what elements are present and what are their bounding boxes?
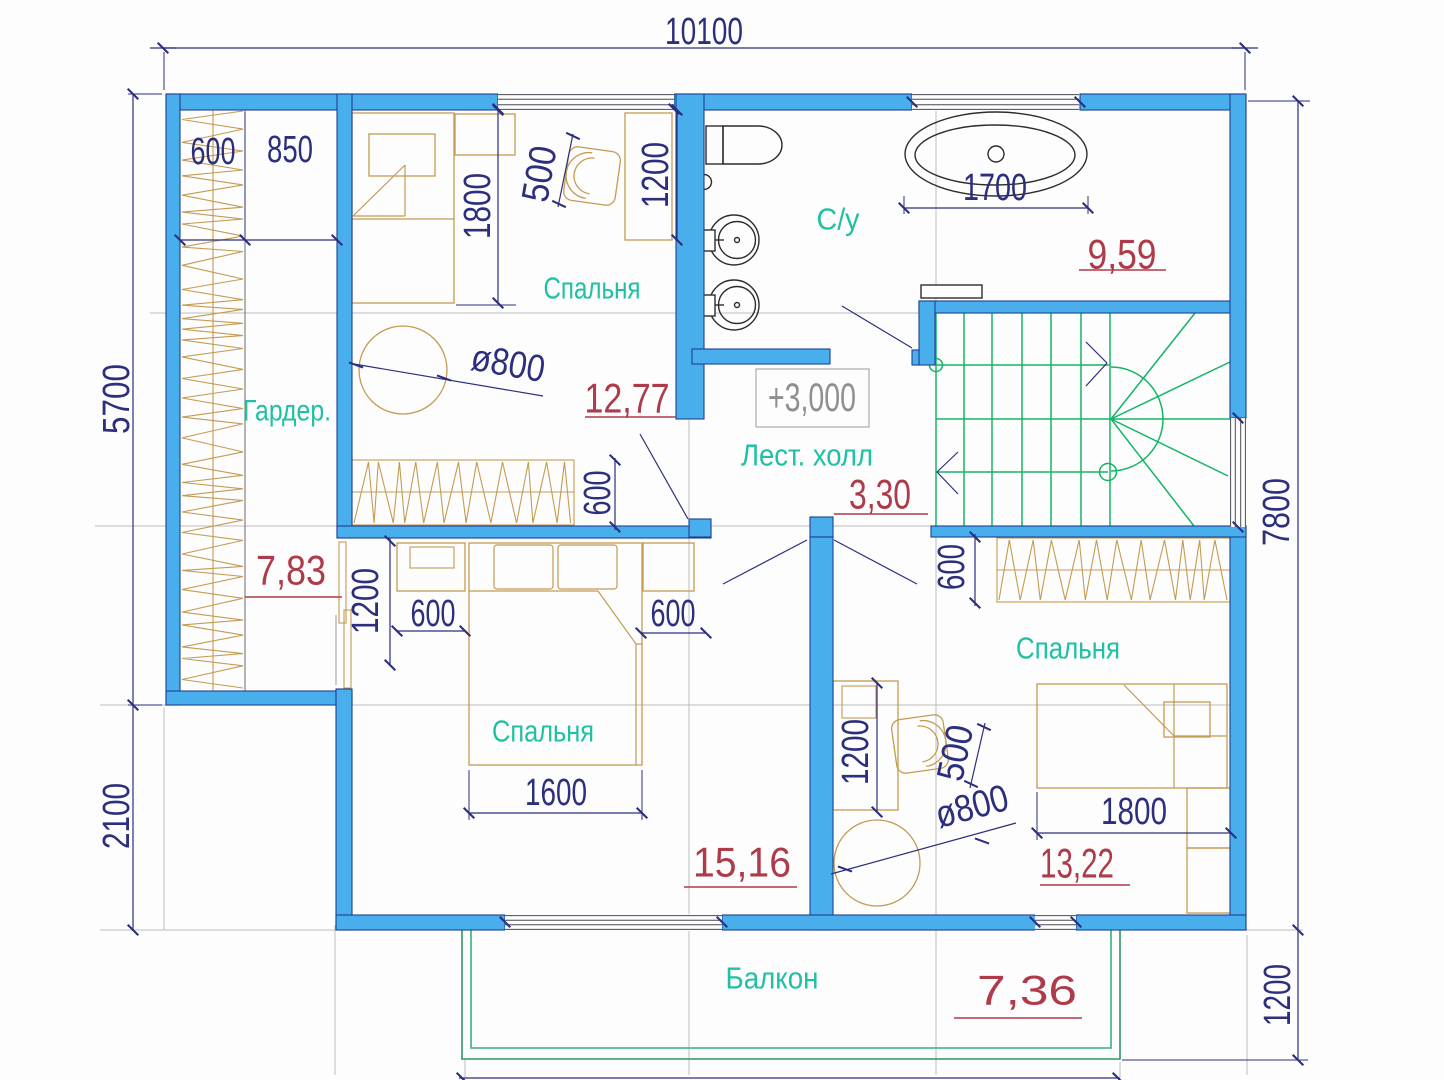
svg-text:Балкон: Балкон [726,961,819,996]
svg-text:1700: 1700 [963,167,1027,209]
svg-text:С/у: С/у [817,202,860,237]
svg-text:1200: 1200 [835,719,877,785]
svg-text:1200: 1200 [345,568,387,634]
svg-text:1800: 1800 [1101,791,1167,833]
svg-text:600: 600 [651,593,696,635]
svg-text:12,77: 12,77 [585,375,670,422]
svg-text:5700: 5700 [96,364,138,434]
svg-text:600: 600 [577,471,619,516]
svg-text:600: 600 [931,544,973,590]
svg-text:1800: 1800 [457,173,499,239]
svg-text:2100: 2100 [96,783,138,849]
svg-text:600: 600 [191,131,236,173]
svg-text:13,22: 13,22 [1040,840,1114,887]
svg-text:Спальня: Спальня [1016,631,1120,666]
svg-text:10100: 10100 [665,11,743,53]
svg-text:15,16: 15,16 [693,839,791,886]
svg-text:850: 850 [267,129,313,171]
svg-text:7,83: 7,83 [256,547,326,594]
svg-text:7,36: 7,36 [977,967,1077,1014]
svg-text:1200: 1200 [635,142,677,208]
svg-text:3,30: 3,30 [849,471,911,518]
svg-text:7800: 7800 [1256,478,1298,546]
svg-text:1600: 1600 [525,772,587,814]
svg-text:Спальня: Спальня [492,714,594,749]
svg-text:Гардер.: Гардер. [243,395,331,428]
svg-text:1200: 1200 [1257,964,1299,1026]
svg-text:600: 600 [411,593,456,635]
svg-text:Лест. холл: Лест. холл [741,438,873,473]
svg-text:Спальня: Спальня [544,271,641,306]
svg-text:+3,000: +3,000 [768,376,856,420]
